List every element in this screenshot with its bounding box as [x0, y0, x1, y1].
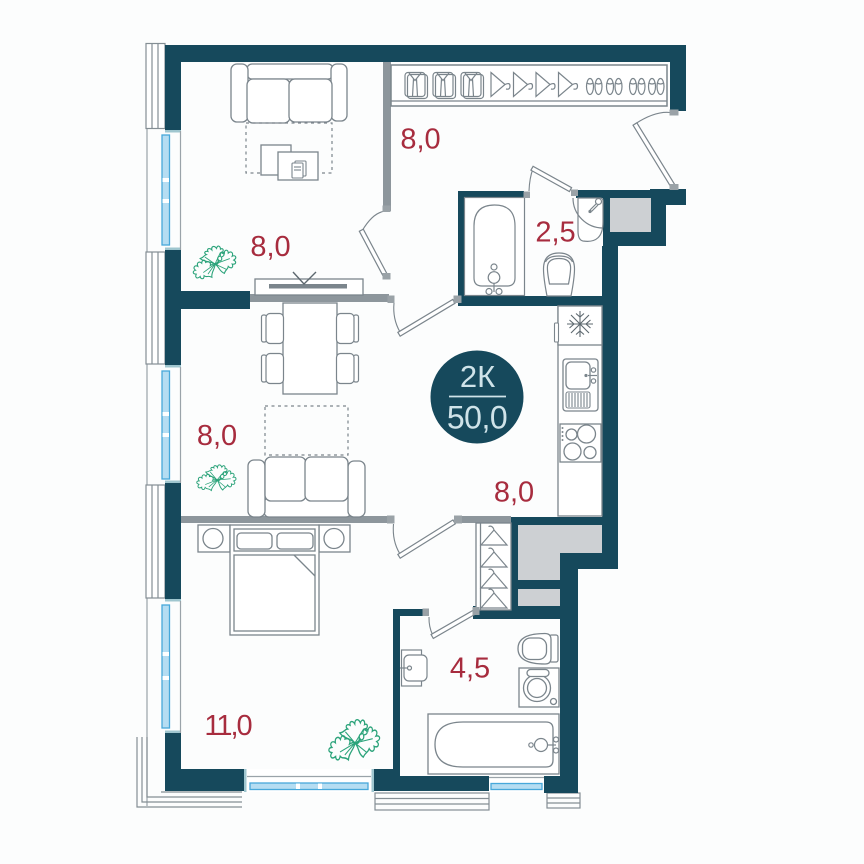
svg-text:8,0: 8,0 [197, 420, 237, 452]
svg-text:2,5: 2,5 [535, 217, 575, 249]
svg-text:8,0: 8,0 [250, 231, 290, 263]
svg-text:4,5: 4,5 [450, 653, 490, 685]
svg-text:11,0: 11,0 [204, 710, 251, 742]
svg-text:8,0: 8,0 [494, 477, 534, 509]
svg-text:8,0: 8,0 [400, 124, 440, 156]
svg-text:50,0: 50,0 [447, 400, 507, 436]
svg-text:2К: 2К [460, 359, 495, 394]
